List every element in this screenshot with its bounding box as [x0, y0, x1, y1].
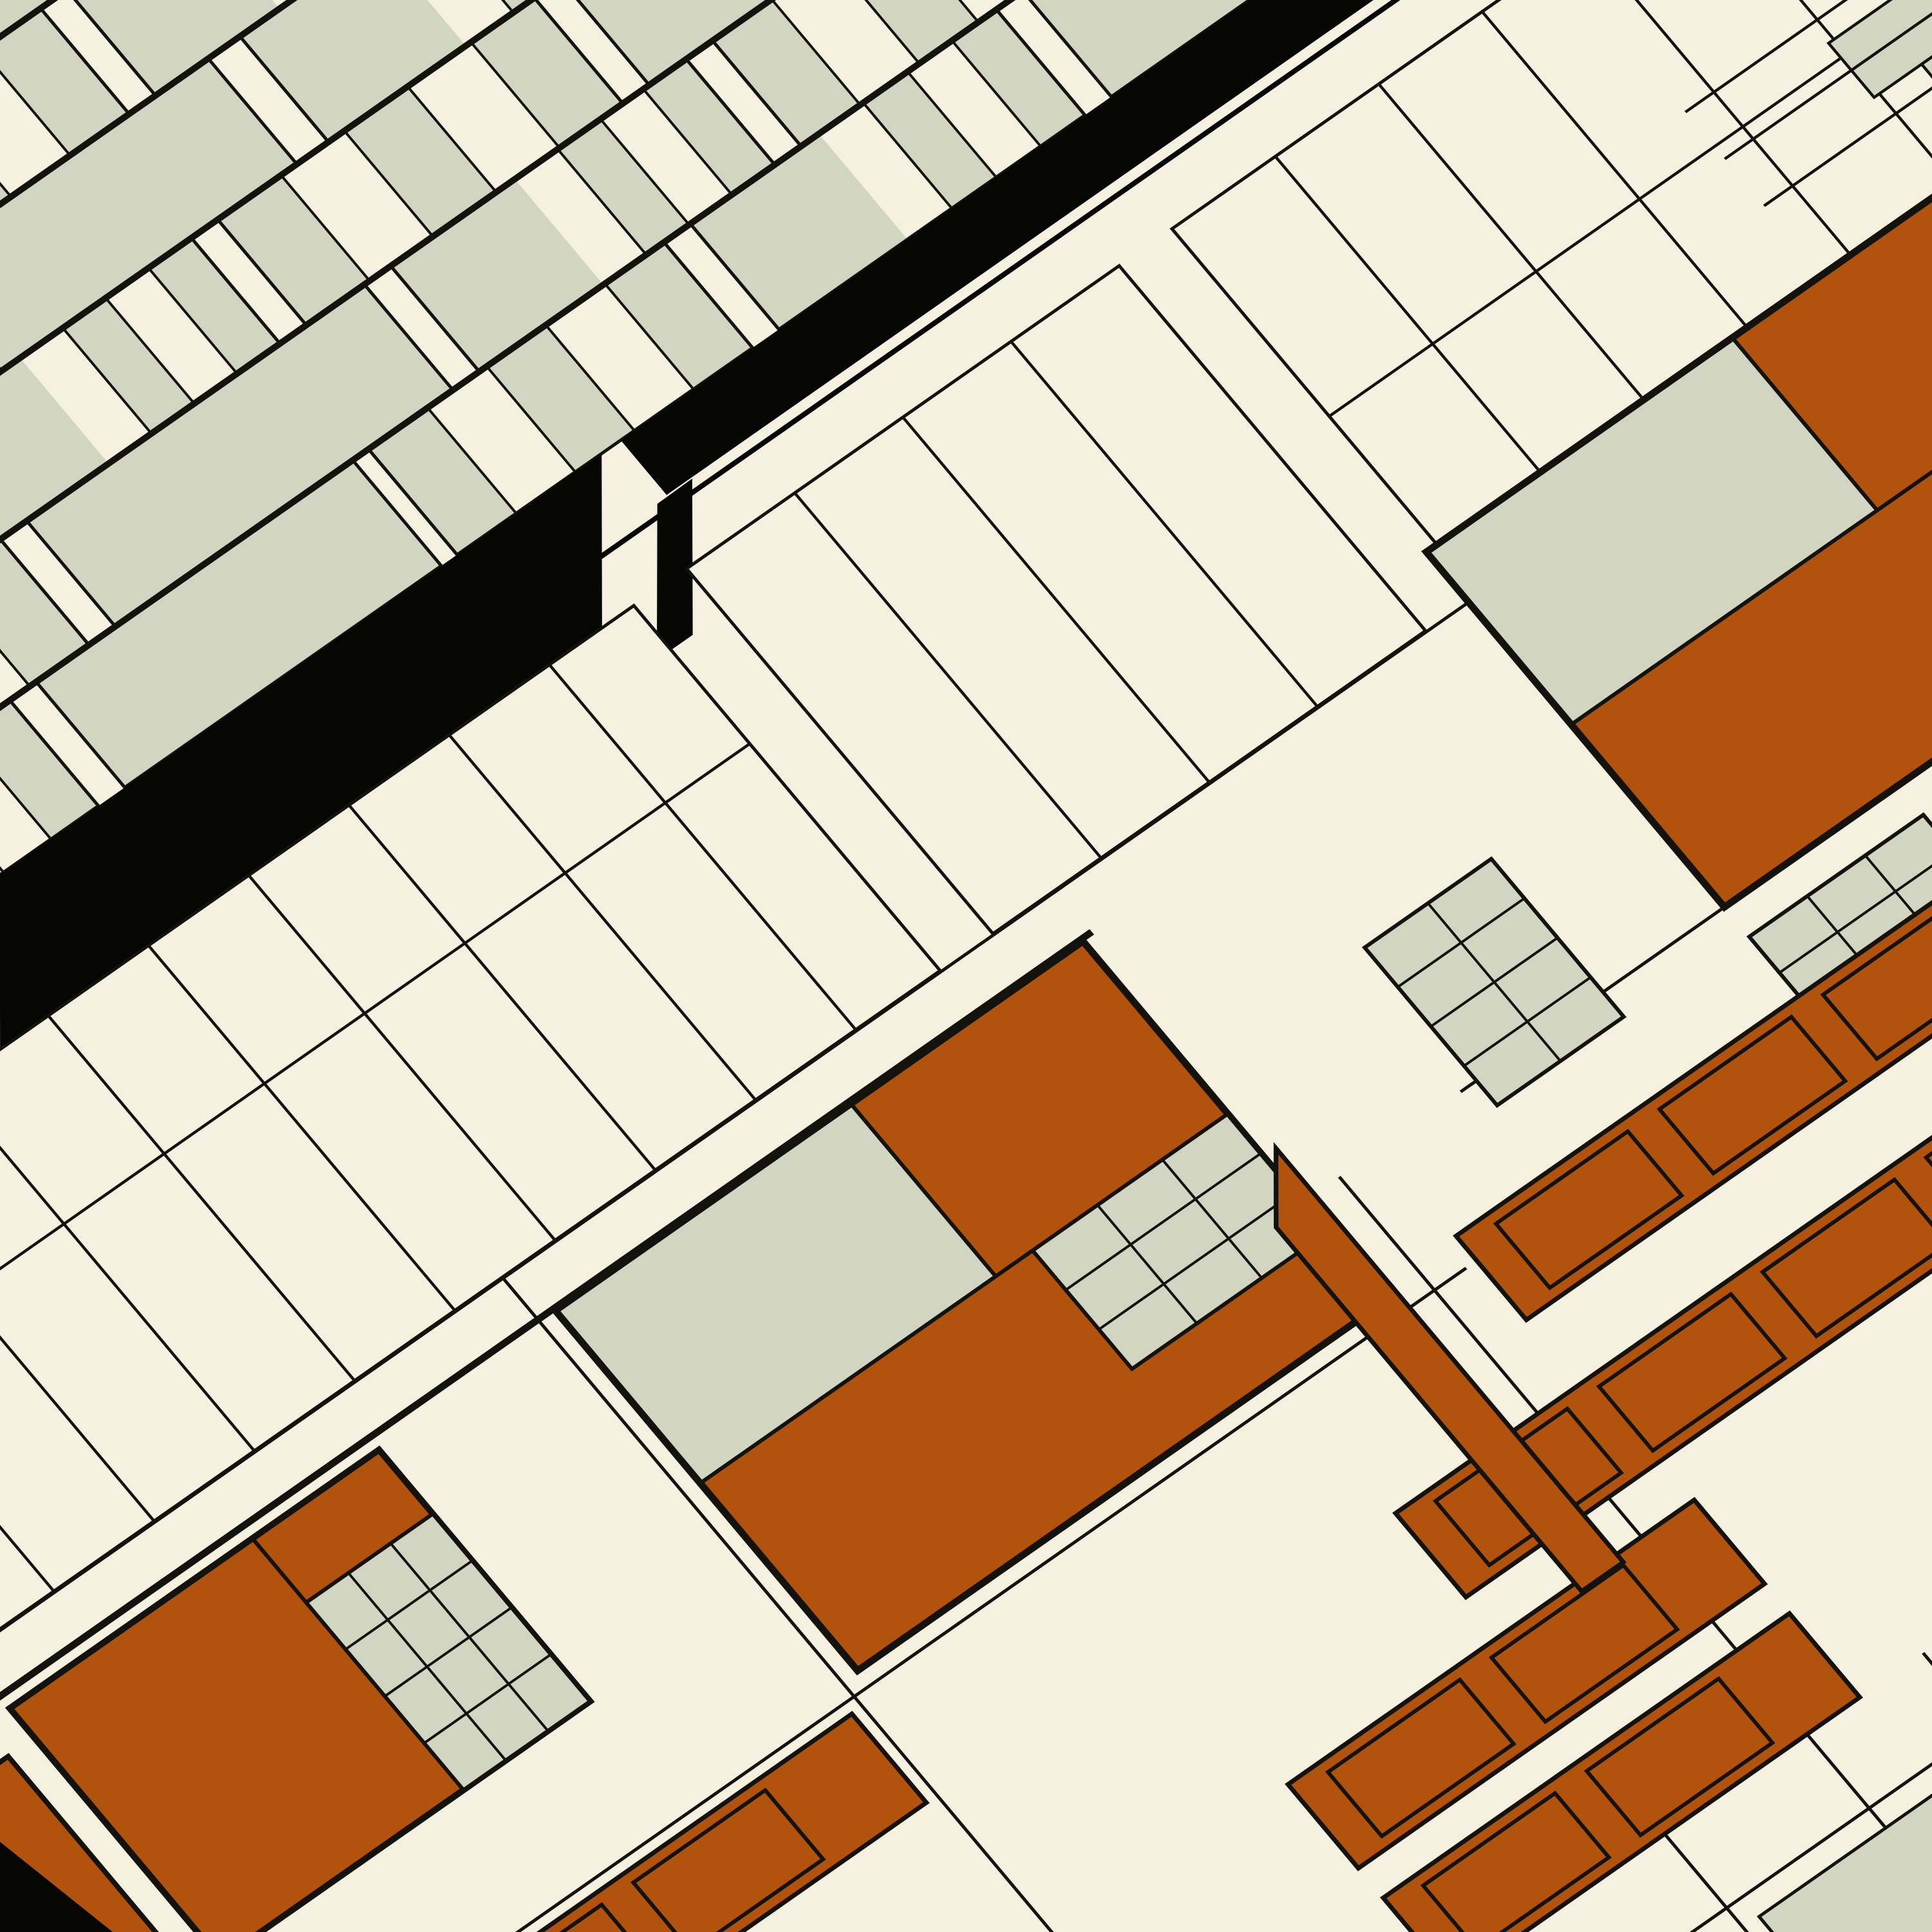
artwork-frame [0, 0, 1932, 1932]
city-map-canvas [0, 0, 1932, 1932]
